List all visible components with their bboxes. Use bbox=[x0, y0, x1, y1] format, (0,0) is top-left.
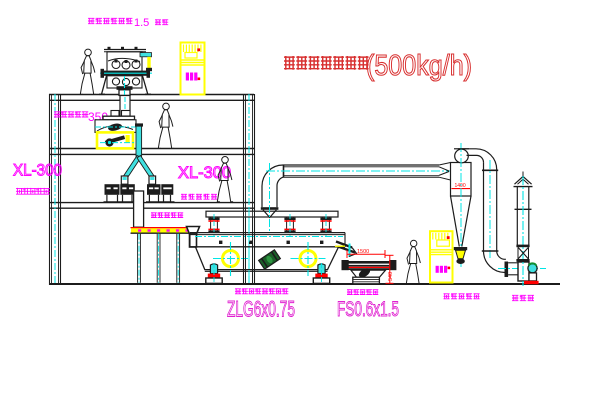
svg-text:1500: 1500 bbox=[357, 249, 369, 255]
svg-text:FS0.6x1.5: FS0.6x1.5 bbox=[337, 298, 399, 321]
svg-text:540: 540 bbox=[388, 272, 394, 281]
svg-text:ZLG6x0.75: ZLG6x0.75 bbox=[227, 297, 295, 322]
svg-text:1.5: 1.5 bbox=[134, 17, 149, 29]
svg-text:(500kg/h): (500kg/h) bbox=[366, 50, 472, 82]
svg-text:1400: 1400 bbox=[455, 183, 466, 189]
svg-text:XL-300: XL-300 bbox=[178, 163, 231, 182]
svg-text:XL-300: XL-300 bbox=[13, 161, 62, 180]
